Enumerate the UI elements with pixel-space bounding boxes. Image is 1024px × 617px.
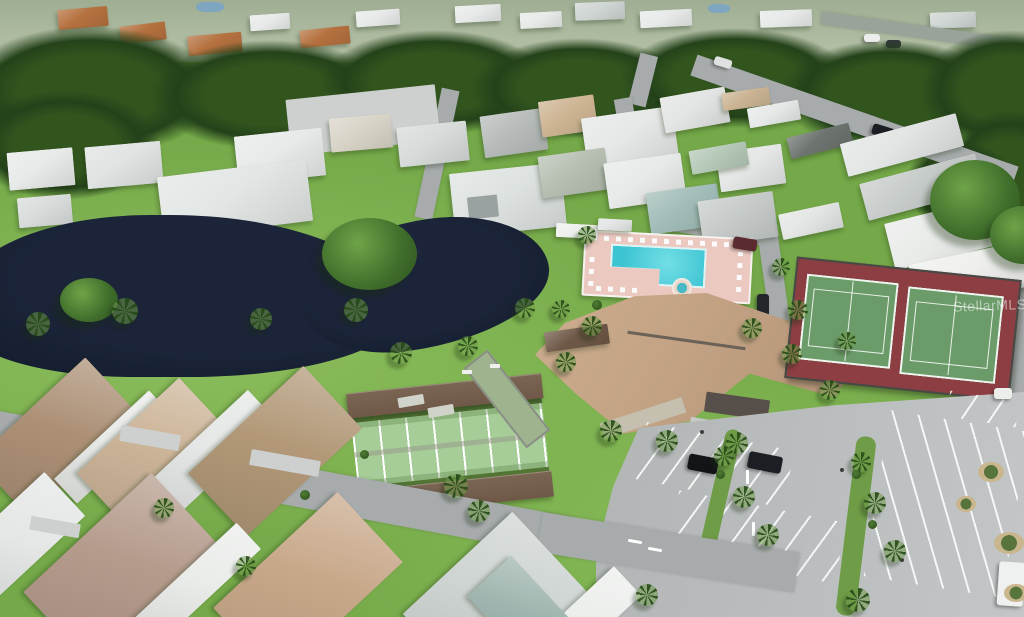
aerial-photo: StellarMLS [0,0,1024,617]
house-roof [249,13,290,32]
house-roof [778,202,844,240]
bush [852,470,861,479]
house-roof [396,120,470,167]
house-roof [479,108,548,158]
house-roof [640,9,693,29]
palm-tree [582,316,602,336]
roof-valley [628,331,746,351]
house-roof [355,8,400,27]
bench [462,370,472,374]
bush [592,300,602,310]
car [994,388,1012,399]
palm-tree [757,524,779,546]
bush [360,450,369,459]
palm-tree [552,300,570,318]
house-roof [520,11,563,29]
lanai-panel [467,194,499,219]
house-roof [930,11,977,29]
tennis-courts [784,257,1022,402]
shore-tree [60,278,118,322]
house-roof [537,147,610,198]
palm-tree [556,352,576,372]
palm-tree [444,474,468,498]
watermark-text: StellarMLS [953,295,1024,314]
palm-tree [772,258,790,276]
distant-pond [708,4,730,13]
light-pole [840,468,844,472]
palm-tree [846,588,870,612]
palm-tree [782,344,802,364]
palm-tree [864,492,886,514]
light-pole [700,430,704,434]
tennis-court [798,274,898,369]
house-roof [329,113,394,152]
palm-tree [788,300,808,320]
lane-arrow [746,470,749,484]
palm-tree [154,498,174,518]
palm-tree [838,332,856,350]
palm-tree [714,446,734,466]
palm-tree [742,318,762,338]
mulch-bed [978,462,1004,482]
palm-tree [884,540,906,562]
palm-tree [636,584,658,606]
bush [716,470,725,479]
palm-tree [851,452,871,472]
palm-tree [578,226,596,244]
palm-tree [656,430,678,452]
palm-tree [390,342,412,364]
pool-cabana [598,218,633,232]
palm-tree [26,312,50,336]
bench [490,364,500,368]
palm-tree [344,298,368,322]
house-roof [455,4,502,23]
palm-tree [112,298,138,324]
bush [300,490,310,500]
palm-tree [515,298,535,318]
palm-tree [468,500,490,522]
palm-tree [458,336,478,356]
palm-tree [733,486,755,508]
lane-arrow [752,522,755,536]
palm-tree [250,308,272,330]
house-roof [6,147,75,191]
bush [868,520,877,529]
house-roof [84,141,163,189]
mulch-bed [956,496,976,512]
distant-pond [196,2,224,12]
palm-tree [600,420,622,442]
shore-tree [322,218,417,290]
palm-tree [820,380,840,400]
house-roof [575,1,626,21]
mulch-bed [1004,584,1024,602]
house-roof [760,9,813,28]
palm-tree [236,556,256,576]
mulch-bed [994,532,1024,554]
